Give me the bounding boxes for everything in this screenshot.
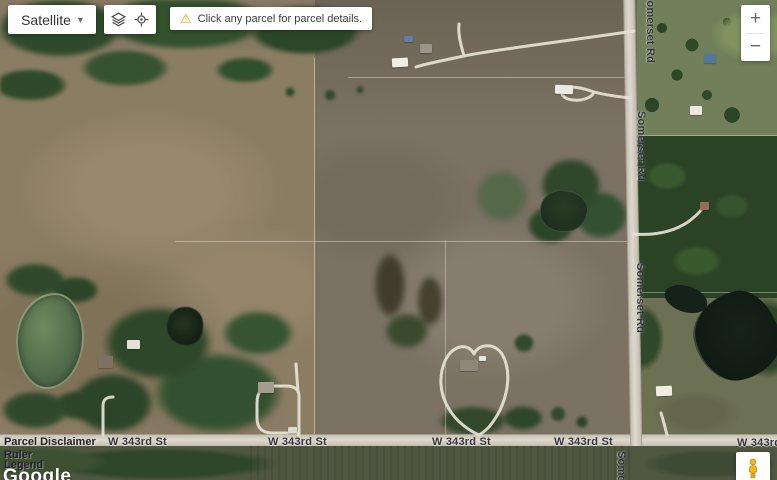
zoom-in-button[interactable]: + (741, 5, 770, 33)
building-white-barn-north (392, 58, 408, 68)
building-farm-house-north (420, 44, 432, 53)
building-east-house (700, 202, 709, 210)
road-label-w343rd-5-clipped: W 343rd St (737, 437, 777, 449)
building-heart-house (460, 360, 478, 371)
driveways-layer (0, 0, 777, 480)
parcel-notice-text: Click any parcel for parcel details. (198, 13, 362, 25)
parcel-disclaimer-link[interactable]: Parcel Disclaimer (4, 436, 96, 448)
road-label-w343rd-4: W 343rd St (554, 436, 613, 448)
map-type-label: Satellite (21, 12, 71, 28)
road-label-w343rd-3: W 343rd St (432, 436, 491, 448)
driveway-farm-spur (459, 24, 464, 56)
road-label-w343rd-1: W 343rd St (108, 436, 167, 448)
driveway-small-loop-stub (296, 364, 298, 392)
road-label-somerset-2: Somerset Rd (635, 111, 647, 185)
chevron-down-icon: ▾ (78, 13, 83, 26)
building-house-pond-area (98, 356, 113, 368)
map-tools-group (104, 5, 156, 34)
warning-icon: ⚠ (180, 12, 192, 25)
building-white-shed-pond (127, 340, 140, 349)
layers-icon (110, 11, 127, 28)
driveway-southeast-stub (661, 413, 667, 435)
satellite-map-canvas[interactable]: W 343rd St W 343rd St W 343rd St W 343rd… (0, 0, 777, 480)
building-heart-garage (479, 356, 486, 361)
zoom-out-button[interactable]: − (741, 34, 770, 62)
layers-button[interactable] (110, 11, 127, 28)
building-blue-pool (404, 36, 413, 42)
building-loop-house (258, 382, 274, 393)
map-type-button[interactable]: Satellite ▾ (8, 5, 96, 34)
pegman-button[interactable] (736, 452, 770, 480)
driveway-west-vertical (103, 397, 113, 435)
road-label-w343rd-2: W 343rd St (268, 436, 327, 448)
google-logo[interactable]: Google (3, 466, 71, 480)
road-label-somerset-1-clipped: Somerset Rd (644, 0, 656, 67)
pegman-icon (742, 456, 764, 480)
building-blue-roof-east (704, 54, 716, 63)
locate-button[interactable] (133, 11, 150, 28)
driveway-farm-north (416, 31, 634, 67)
building-loop-shed (288, 427, 297, 433)
parcel-notice-banner: ⚠ Click any parcel for parcel details. (170, 7, 372, 30)
road-label-somerset-4-clipped: Somerset Rd (615, 451, 627, 480)
locate-icon (133, 11, 150, 28)
building-white-east (690, 106, 702, 115)
building-white-barn-southeast (656, 386, 672, 397)
building-white-barn-mid (555, 85, 573, 95)
road-label-somerset-3: Somerset Rd (634, 263, 646, 337)
parcel-map-viewer: W 343rd St W 343rd St W 343rd St W 343rd… (0, 0, 777, 480)
driveway-east-house (633, 207, 703, 234)
zoom-control: + − (741, 5, 770, 61)
